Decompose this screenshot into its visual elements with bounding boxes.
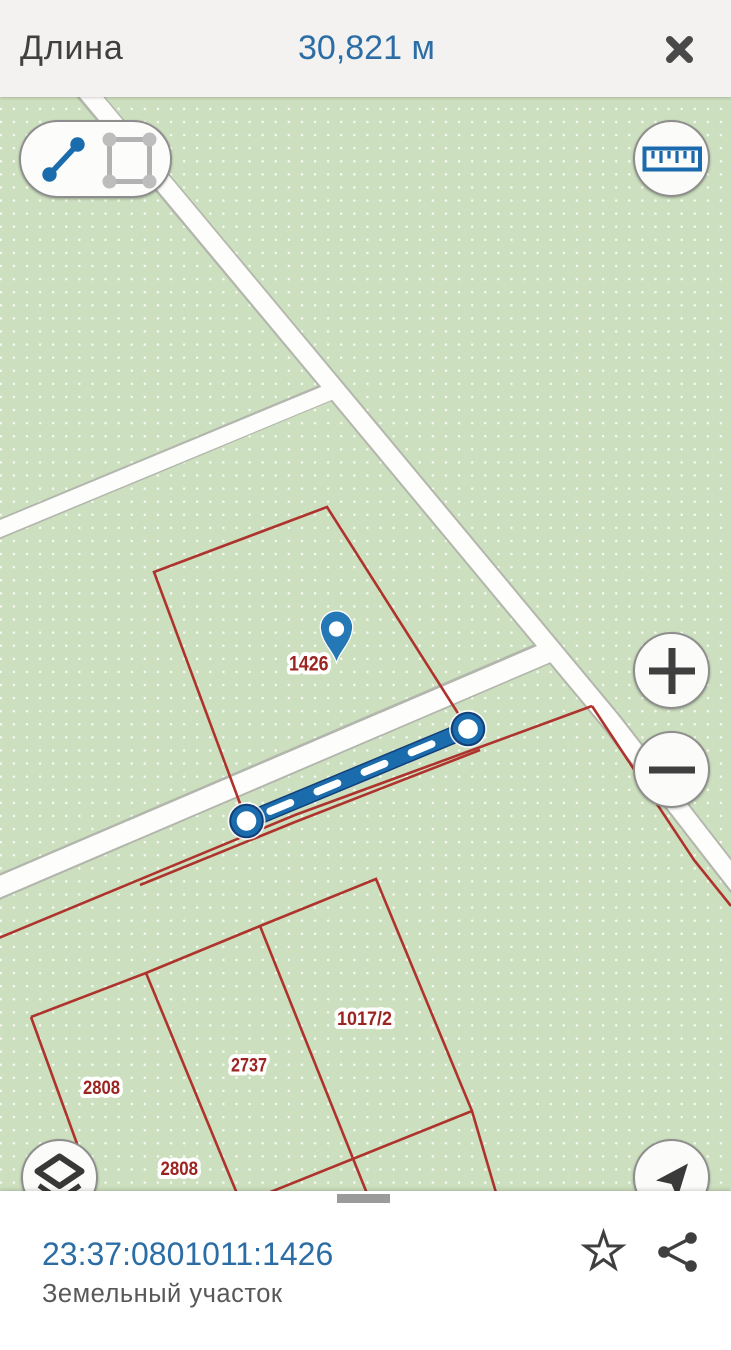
svg-text:2808: 2808	[83, 1078, 120, 1099]
svg-text:2808: 2808	[161, 1159, 199, 1180]
svg-text:2737: 2737	[231, 1056, 267, 1077]
svg-text:1017/2: 1017/2	[337, 1009, 392, 1030]
svg-text:1426: 1426	[289, 652, 329, 676]
